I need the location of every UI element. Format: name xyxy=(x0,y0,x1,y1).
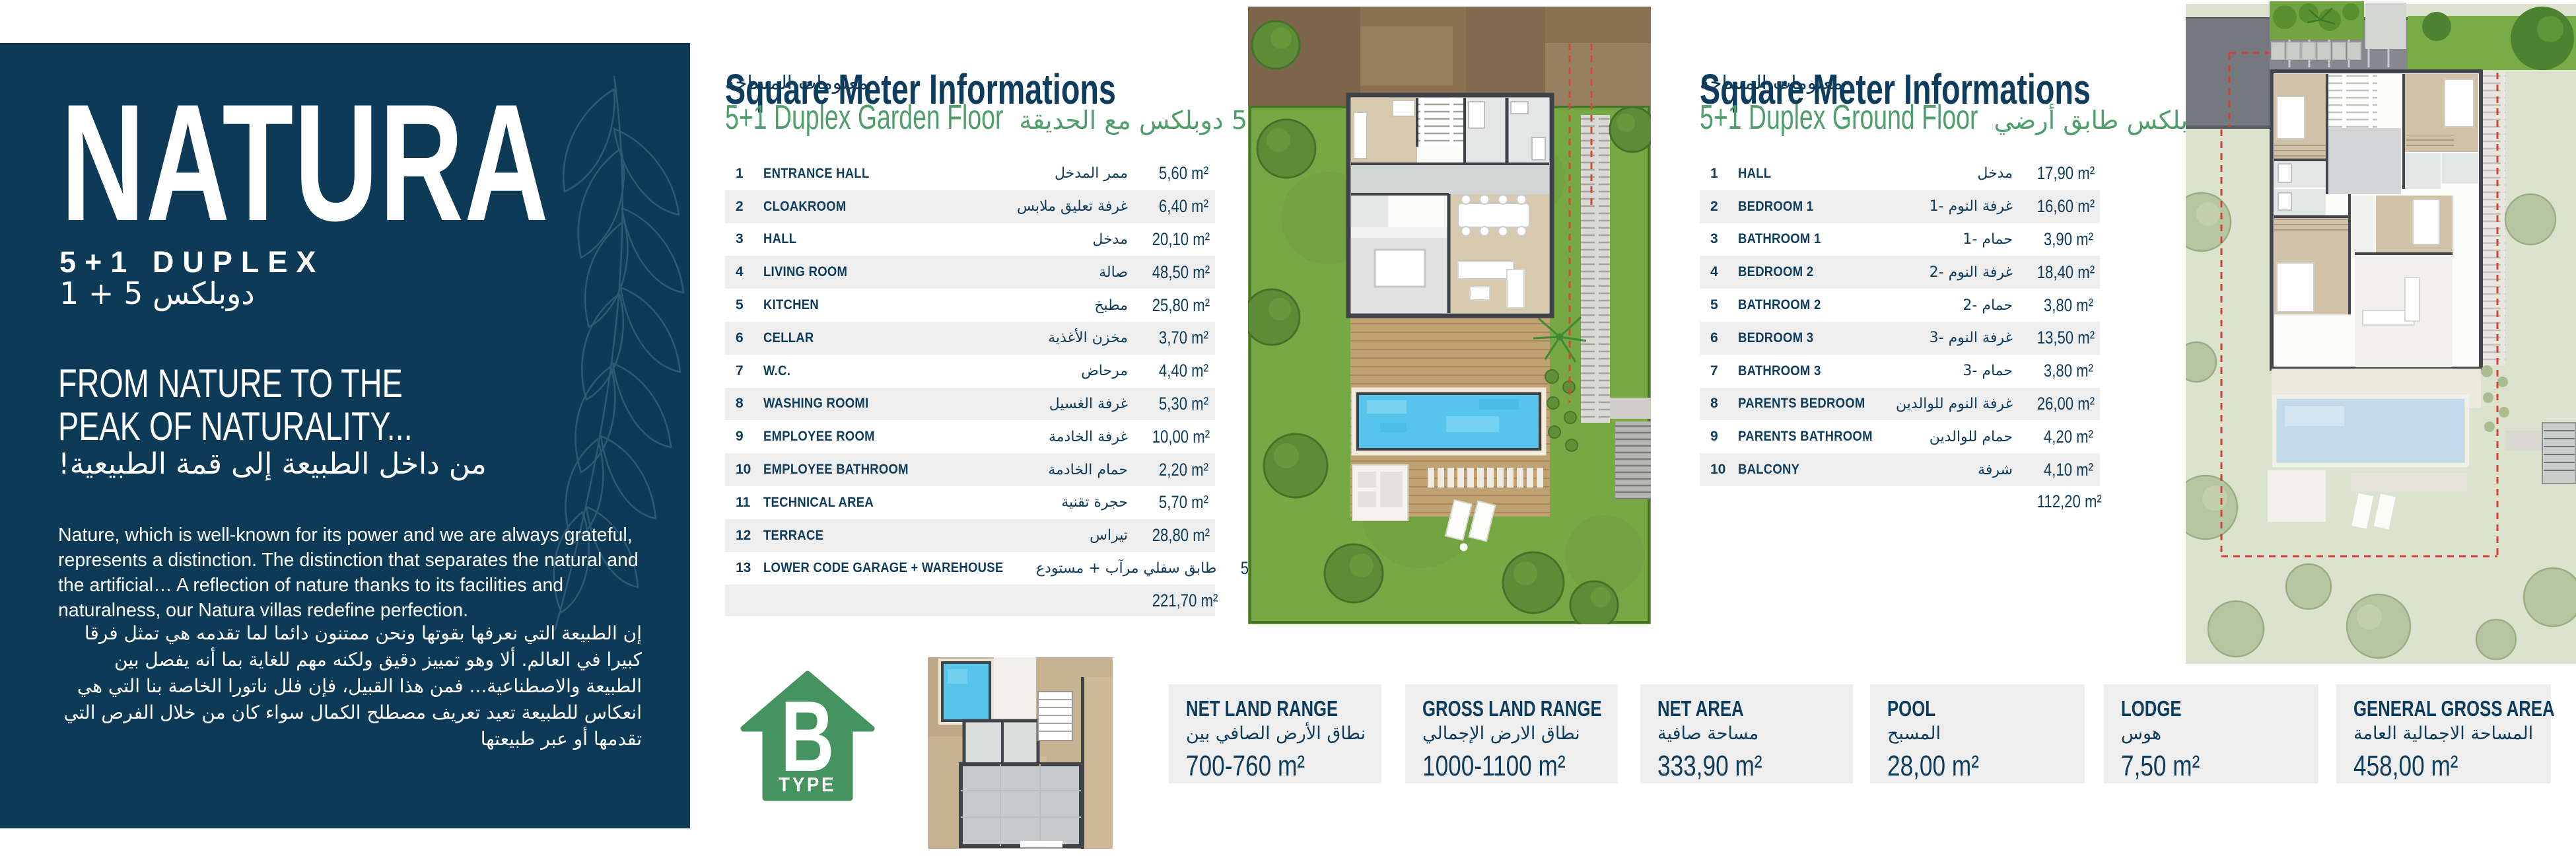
row-name: HALL xyxy=(1738,166,1771,182)
summary-box-value: 28,00 m² xyxy=(1887,750,2045,783)
table-row: 10BALCONYشرفة4,10 m² xyxy=(1700,453,2100,486)
summary-box-title: GROSS LAND RANGE xyxy=(1422,696,1575,721)
row-number: 11 xyxy=(736,495,763,511)
table-row: 3BATHROOM 1حمام -13,90 m² xyxy=(1700,223,2100,256)
summary-box-title-arabic: المسبح xyxy=(1887,723,2085,744)
headline-line1: FROM NATURE TO THE xyxy=(58,363,413,406)
ground-floor-plan xyxy=(2186,0,2576,664)
row-name-arabic: حمام -3 xyxy=(1963,363,2025,379)
row-number: 6 xyxy=(736,330,763,346)
table-total-row: 112,20 m² xyxy=(1700,486,2100,518)
row-number: 9 xyxy=(1710,429,1738,445)
row-area: 28,80 m² xyxy=(1152,525,1208,546)
section-heading-arabic: معلومات المساحة xyxy=(1700,71,1843,94)
table-row: 4BEDROOM 2غرفة النوم -218,40 m² xyxy=(1700,256,2100,289)
floor-label: 5+1 Duplex Garden Floor 5+1 دوبلكس مع ال… xyxy=(725,98,1284,137)
basement-plan-thumbnail xyxy=(928,657,1113,849)
row-name-arabic: طابق سفلي مرآب + مستودع xyxy=(1036,560,1228,577)
row-area: 18,40 m² xyxy=(2037,262,2093,283)
table-row: 9EMPLOYEE ROOMغرفة الخادمة10,00 m² xyxy=(725,420,1215,453)
row-area: 3,80 m² xyxy=(2037,361,2093,381)
table-row: 5KITCHENمطبخ25,80 m² xyxy=(725,289,1215,322)
row-name-arabic: حمام للوالدين xyxy=(1930,429,2025,445)
row-number: 5 xyxy=(736,297,763,313)
row-number: 5 xyxy=(1710,297,1738,313)
table-row: 6BEDROOM 3غرفة النوم -313,50 m² xyxy=(1700,322,2100,355)
row-name: LIVING ROOM xyxy=(763,264,847,280)
row-area: 4,10 m² xyxy=(2037,460,2093,480)
row-name-arabic: غرفة النوم -3 xyxy=(1930,330,2025,346)
summary-box: NET LAND RANGEنطاق الأرض الصافي بين700-7… xyxy=(1169,684,1381,783)
row-name-arabic: حمام -1 xyxy=(1963,231,2025,248)
row-name: BATHROOM 1 xyxy=(1738,231,1821,247)
table-row: 4LIVING ROOMصالة48,50 m² xyxy=(725,256,1215,289)
row-number: 3 xyxy=(1710,231,1738,247)
type-line: 5+1 DUPLEX xyxy=(59,245,324,279)
row-number: 10 xyxy=(1710,462,1738,478)
table-row: 2BEDROOM 1غرفة النوم -116,60 m² xyxy=(1700,190,2100,223)
row-name-arabic: مدخل xyxy=(1977,165,2025,182)
table-row: 11TECHNICAL AREAحجرة تقنية5,70 m² xyxy=(725,486,1215,519)
headline: FROM NATURE TO THE PEAK OF NATURALITY... xyxy=(58,363,413,449)
row-name-arabic: غرفة تعليق ملابس xyxy=(1017,198,1140,215)
villa-footprint xyxy=(2272,71,2481,369)
row-name: TERRACE xyxy=(763,528,823,544)
row-name-arabic: مخزن الأغذية xyxy=(1048,330,1140,346)
row-area: 25,80 m² xyxy=(1152,295,1208,316)
row-area: 3,80 m² xyxy=(2037,295,2093,316)
table-row: 2CLOAKROOMغرفة تعليق ملابس6,40 m² xyxy=(725,190,1215,223)
summary-box-value: 7,50 m² xyxy=(2121,750,2279,783)
row-number: 13 xyxy=(736,560,763,576)
garden-floor-plan xyxy=(1248,7,1651,624)
summary-box: POOLالمسبح28,00 m² xyxy=(1870,684,2085,783)
row-name-arabic: شرفة xyxy=(1978,462,2025,478)
brand-title: NATURA xyxy=(61,80,549,246)
row-area: 3,70 m² xyxy=(1152,328,1208,348)
row-name: PARENTS BEDROOM xyxy=(1738,396,1865,412)
neighbor-stair xyxy=(2542,423,2576,484)
row-area: 16,60 m² xyxy=(2037,196,2093,217)
row-name-arabic: حمام الخادمة xyxy=(1048,462,1140,478)
row-name: HALL xyxy=(763,231,796,247)
left-panel: NATURA 5+1 DUPLEX دوبلكس 5 + 1 FROM NATU… xyxy=(0,43,690,828)
summary-box-value: 333,90 m² xyxy=(1657,750,1814,783)
badge-word: TYPE xyxy=(779,774,836,797)
row-area: 13,50 m² xyxy=(2037,328,2093,348)
row-name: BEDROOM 1 xyxy=(1738,199,1813,215)
row-area: 6,40 m² xyxy=(1152,196,1208,217)
row-number: 1 xyxy=(736,166,763,182)
row-number: 9 xyxy=(736,429,763,445)
row-number: 3 xyxy=(736,231,763,247)
summary-box: LODGEهوس7,50 m² xyxy=(2104,684,2318,783)
summary-box-value: 458,00 m² xyxy=(2353,750,2511,783)
row-number: 8 xyxy=(1710,396,1738,412)
row-name-arabic: غرفة النوم للوالدين xyxy=(1896,396,2025,412)
table-row: 9PARENTS BATHROOMحمام للوالدين4,20 m² xyxy=(1700,420,2100,453)
table-row: 7BATHROOM 3حمام -33,80 m² xyxy=(1700,355,2100,388)
row-area: 48,50 m² xyxy=(1152,262,1208,283)
summary-box-title: POOL xyxy=(1887,696,2041,721)
table-row: 3HALLمدخل20,10 m² xyxy=(725,223,1215,256)
row-name-arabic: مدخل xyxy=(1092,231,1140,248)
table-row: 13LOWER CODE GARAGE + WAREHOUSEطابق سفلي… xyxy=(725,552,1215,585)
brochure-page: NATURA 5+1 DUPLEX دوبلكس 5 + 1 FROM NATU… xyxy=(0,0,2576,868)
intro-paragraph-arabic: إن الطبيعة التي نعرفها بقوتها ونحن ممتنو… xyxy=(58,620,642,752)
row-name: TECHNICAL AREA xyxy=(763,495,874,511)
row-name-arabic: غرفة النوم -1 xyxy=(1930,198,2025,215)
table-row: 10EMPLOYEE BATHROOMحمام الخادمة2,20 m² xyxy=(725,453,1215,486)
type-b-badge: B TYPE xyxy=(740,670,875,801)
table-row: 7W.C.مرحاض4,40 m² xyxy=(725,355,1215,388)
row-name: KITCHEN xyxy=(763,297,819,313)
stepping-boardwalk xyxy=(1425,468,1544,488)
row-area: 26,00 m² xyxy=(2037,394,2093,414)
row-area: 3,90 m² xyxy=(2037,229,2093,250)
row-area: 5,70 m² xyxy=(1152,492,1208,513)
summary-box: NET AREAمساحة صافية333,90 m² xyxy=(1640,684,1853,783)
row-number: 1 xyxy=(1710,166,1738,182)
row-name: BEDROOM 2 xyxy=(1738,264,1813,280)
row-number: 4 xyxy=(736,264,763,280)
row-name-arabic: حجرة تقنية xyxy=(1061,494,1140,511)
row-name-arabic: حمام -2 xyxy=(1963,297,2025,314)
row-area: 20,10 m² xyxy=(1152,229,1208,250)
floor-label-arabic: 5+1 دوبلكس مع الحديقة xyxy=(1019,106,1284,135)
summary-box-title-arabic: المساحة الاجمالية العامة xyxy=(2353,723,2551,744)
floor-label-english: 5+1 Duplex Garden Floor xyxy=(725,98,1003,137)
table-row: 5BATHROOM 2حمام -23,80 m² xyxy=(1700,289,2100,322)
row-name: W.C. xyxy=(763,363,790,379)
row-number: 6 xyxy=(1710,330,1738,346)
total-area: 221,70 m² xyxy=(1152,591,1208,611)
row-name: EMPLOYEE ROOM xyxy=(763,429,875,445)
row-name: LOWER CODE GARAGE + WAREHOUSE xyxy=(763,560,1003,576)
row-name-arabic: صالة xyxy=(1099,264,1140,281)
table-row: 8WASHING ROOMIغرفة الغسيل5,30 m² xyxy=(725,388,1215,421)
row-area: 5,60 m² xyxy=(1152,163,1208,184)
row-number: 12 xyxy=(736,528,763,544)
table-row: 1ENTRANCE HALLممر المدخل5,60 m² xyxy=(725,157,1215,190)
row-area: 10,00 m² xyxy=(1152,427,1208,447)
row-name-arabic: مرحاض xyxy=(1081,363,1140,379)
floor-label-english: 5+1 Duplex Ground Floor xyxy=(1700,98,1978,137)
row-name-arabic: مطبخ xyxy=(1094,297,1140,314)
type-line-arabic: دوبلكس 5 + 1 xyxy=(59,275,255,311)
row-name: PARENTS BATHROOM xyxy=(1738,429,1873,445)
summary-box-title: NET AREA xyxy=(1657,696,1810,721)
summary-box-title-arabic: نطاق الارض الإجمالي xyxy=(1422,723,1618,744)
row-name: CELLAR xyxy=(763,330,814,346)
row-area: 4,40 m² xyxy=(1152,361,1208,381)
row-name: ENTRANCE HALL xyxy=(763,166,870,182)
row-name-arabic: ممر المدخل xyxy=(1055,165,1140,182)
intro-paragraph-english: Nature, which is well-known for its powe… xyxy=(58,523,642,623)
area-table: 1ENTRANCE HALLممر المدخل5,60 m²2CLOAKROO… xyxy=(725,157,1215,616)
row-number: 10 xyxy=(736,462,763,478)
row-number: 2 xyxy=(1710,199,1738,215)
summary-box-title: NET LAND RANGE xyxy=(1186,696,1339,721)
total-area: 112,20 m² xyxy=(2037,491,2093,512)
row-name-arabic: غرفة الخادمة xyxy=(1049,429,1140,445)
row-name: BEDROOM 3 xyxy=(1738,330,1813,346)
row-area: 2,20 m² xyxy=(1152,460,1208,480)
row-number: 7 xyxy=(736,363,763,379)
table-row: 6CELLARمخزن الأغذية3,70 m² xyxy=(725,322,1215,355)
section-heading-arabic: معلومات المساحة xyxy=(725,71,868,94)
row-name: BALCONY xyxy=(1738,462,1799,478)
area-table: 1HALLمدخل17,90 m²2BEDROOM 1غرفة النوم -1… xyxy=(1700,157,2100,518)
summary-box-title-arabic: هوس xyxy=(2121,723,2318,744)
row-number: 4 xyxy=(1710,264,1738,280)
row-area: 17,90 m² xyxy=(2037,163,2093,184)
headline-arabic: من داخل الطبيعة إلى قمة الطبيعية! xyxy=(58,447,487,481)
row-name-arabic: غرفة الغسيل xyxy=(1049,396,1140,412)
road xyxy=(2186,18,2270,127)
summary-box-value: 1000-1100 m² xyxy=(1422,750,1579,783)
row-number: 7 xyxy=(1710,363,1738,379)
table-row: 8PARENTS BEDROOMغرفة النوم للوالدين26,00… xyxy=(1700,388,2100,421)
summary-box: GENERAL GROSS AREAالمساحة الاجمالية العا… xyxy=(2336,684,2551,783)
table-row: 1HALLمدخل17,90 m² xyxy=(1700,157,2100,190)
summary-box-title-arabic: مساحة صافية xyxy=(1657,723,1853,744)
villa-footprint xyxy=(1348,95,1552,316)
row-number: 2 xyxy=(736,199,763,215)
row-name: WASHING ROOMI xyxy=(763,396,868,412)
summary-box-value: 700-760 m² xyxy=(1186,750,1342,783)
row-name: BATHROOM 2 xyxy=(1738,297,1821,313)
summary-box-title: GENERAL GROSS AREA xyxy=(2353,696,2507,721)
summary-box-title: LODGE xyxy=(2121,696,2275,721)
basement-garage xyxy=(961,764,1081,846)
table-row: 12TERRACEتيراس28,80 m² xyxy=(725,519,1215,552)
row-name: CLOAKROOM xyxy=(763,199,847,215)
summary-box: GROSS LAND RANGEنطاق الارض الإجمالي1000-… xyxy=(1405,684,1618,783)
table-total-row: 221,70 m² xyxy=(725,585,1215,616)
row-number: 8 xyxy=(736,396,763,412)
row-name-arabic: تيراس xyxy=(1090,527,1140,544)
row-area: 4,20 m² xyxy=(2037,427,2093,447)
headline-line2: PEAK OF NATURALITY... xyxy=(58,406,413,449)
row-name: EMPLOYEE BATHROOM xyxy=(763,462,909,478)
row-area: 5,30 m² xyxy=(1152,394,1208,414)
summary-box-title-arabic: نطاق الأرض الصافي بين xyxy=(1186,723,1381,744)
row-name-arabic: غرفة النوم -2 xyxy=(1930,264,2025,281)
row-name: BATHROOM 3 xyxy=(1738,363,1821,379)
